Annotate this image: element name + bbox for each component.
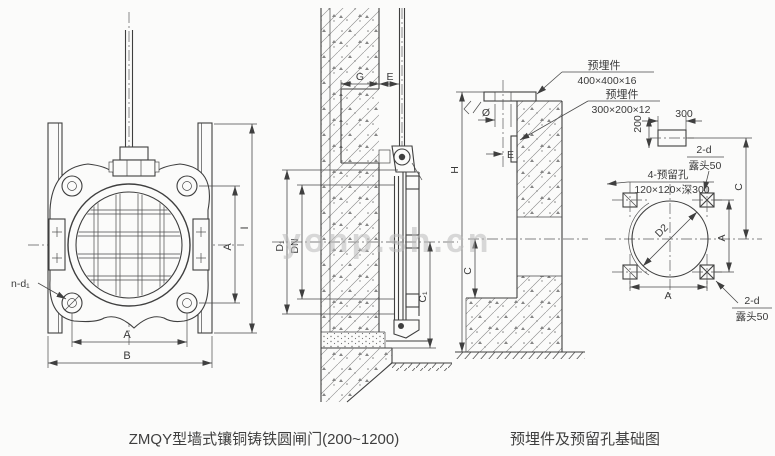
embed-plate-side-label: 预埋件 <box>606 88 639 101</box>
embed-plate-side-size: 300×200×12 <box>592 104 651 116</box>
dim-a-horizontal: A <box>123 329 131 341</box>
wall-section-view: G E D₁ DN C₁ <box>272 8 458 402</box>
bolt-count-label: n-d₁ <box>11 278 30 290</box>
dim-c-plan: C <box>733 183 745 191</box>
dim-a-plan-vertical: A <box>716 234 728 241</box>
holes-size: 120×120×深300 <box>634 184 709 196</box>
dim-c1: C₁ <box>417 291 429 303</box>
anchor-bottom-label: 2-d <box>744 295 759 307</box>
dim-300: 300 <box>675 108 693 120</box>
dim-h: H <box>449 166 461 174</box>
dim-phi: Ø <box>482 107 490 119</box>
plan-view: D2 300 200 4-预留孔 120×120×深300 2-d 露头50 2… <box>605 108 772 323</box>
dim-d2: D2 <box>653 222 671 240</box>
holes-label: 4-预留孔 <box>648 168 689 181</box>
drawing-sheet: n-d₁ A B A I <box>0 0 775 456</box>
embed-plate-top-label: 预埋件 <box>588 59 621 72</box>
caption-gate-title: ZMQY型墙式镶铜铸铁圆闸门(200~1200) <box>118 428 410 449</box>
watermark: yonp.sh.cn <box>282 222 491 261</box>
embed-section-view: Ø E H C 预埋件 400×400×16 预埋件 300×200×12 <box>449 59 660 359</box>
dim-a-plan-horizontal: A <box>664 290 671 302</box>
anchor-top-label: 2-d <box>696 144 711 156</box>
anchor-hook <box>464 101 471 114</box>
embed-plate-top-size: 400×400×16 <box>578 75 637 87</box>
ground-hatch-right <box>455 352 585 359</box>
ground-hatch <box>392 363 452 371</box>
dim-a-vertical: A <box>222 243 234 251</box>
dim-e-section: E <box>386 71 393 83</box>
concrete-column-upper <box>517 101 562 217</box>
dim-e-embed: E <box>507 149 514 161</box>
dim-g: G <box>356 71 364 83</box>
anchor-hook <box>473 102 481 113</box>
dim-200: 200 <box>632 115 644 133</box>
wall-anchor <box>379 150 390 163</box>
concrete-column-lower <box>517 276 562 352</box>
anchor-top-note: 露头50 <box>689 160 722 172</box>
dim-c-embed: C <box>462 267 474 275</box>
dim-b: B <box>123 350 130 362</box>
concrete-floor-right <box>466 298 517 352</box>
anchor-bottom-note: 露头50 <box>736 311 769 323</box>
front-view: n-d₁ A B A I <box>11 12 257 368</box>
dim-i: I <box>239 226 251 229</box>
grout-strip <box>321 332 385 348</box>
stem-coupling <box>109 147 159 176</box>
stem-clevis <box>392 146 422 180</box>
gate-ring-outer <box>68 184 190 306</box>
caption-foundation-title: 预埋件及预留孔基础图 <box>500 428 670 449</box>
